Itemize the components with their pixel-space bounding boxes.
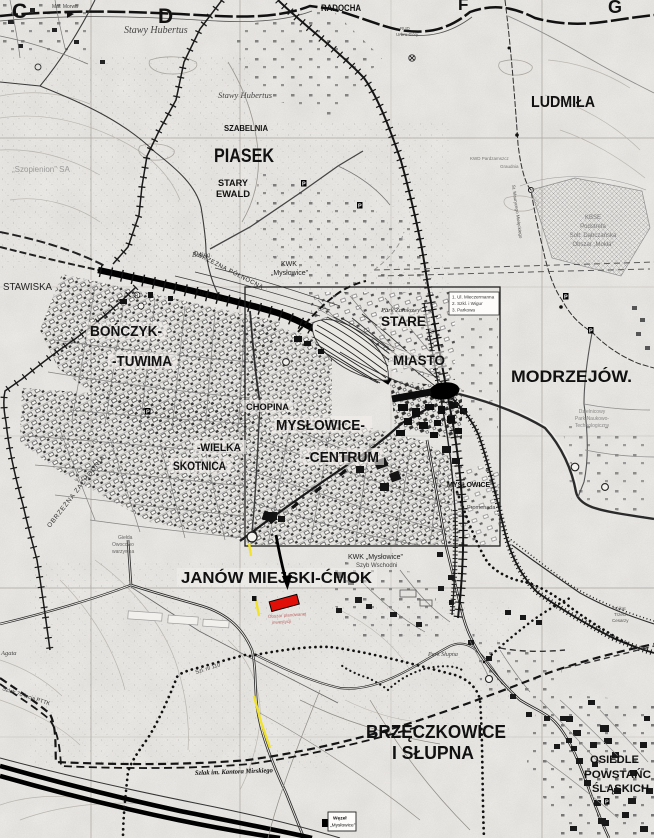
svg-text:P: P xyxy=(302,181,306,187)
svg-text:MODRZEJÓW.: MODRZEJÓW. xyxy=(511,367,632,386)
svg-text:Obszar „Mokła”: Obszar „Mokła” xyxy=(572,242,613,248)
svg-text:Park Naukowo-: Park Naukowo- xyxy=(575,416,610,422)
svg-text:Węzeł: Węzeł xyxy=(333,816,347,822)
svg-text:P: P xyxy=(358,203,362,209)
svg-text:P: P xyxy=(564,294,568,300)
svg-text:SKOTNICA: SKOTNICA xyxy=(173,461,226,473)
svg-text:STARE: STARE xyxy=(381,313,426,329)
svg-text:Trzech: Trzech xyxy=(614,612,628,617)
svg-text:Park Zamkowy: Park Zamkowy xyxy=(380,307,420,314)
svg-text:„Szopienion” SA: „Szopienion” SA xyxy=(12,165,70,174)
svg-text:OSIEDLE: OSIEDLE xyxy=(590,754,639,766)
svg-text:Mal. Morwa: Mal. Morwa xyxy=(52,4,78,10)
svg-text:Stawy Hubertus: Stawy Hubertus xyxy=(124,25,188,36)
svg-text:Agata: Agata xyxy=(0,650,17,657)
svg-text:PIASEK: PIASEK xyxy=(214,146,274,167)
svg-text:R: R xyxy=(135,294,139,300)
svg-text:2. Szkl. i Wigur: 2. Szkl. i Wigur xyxy=(452,301,483,306)
svg-text:P: P xyxy=(589,328,593,334)
svg-text:BRZĘCZKOWICE: BRZĘCZKOWICE xyxy=(366,722,506,742)
svg-text:MIASTO: MIASTO xyxy=(393,352,445,368)
svg-text:EWALD: EWALD xyxy=(216,189,251,199)
svg-text:KWK „Mysłowice”: KWK „Mysłowice” xyxy=(348,554,404,561)
svg-text:warzywna: warzywna xyxy=(112,549,134,555)
svg-text:JANÓW MIEJSKI-ĆMOK: JANÓW MIEJSKI-ĆMOK xyxy=(181,568,372,587)
svg-text:G: G xyxy=(608,0,622,17)
svg-text:BOŃCZYK-: BOŃCZYK- xyxy=(90,323,162,340)
svg-text:1. Ul. Mieczermanna: 1. Ul. Mieczermanna xyxy=(452,295,495,300)
svg-text:-TUWIMA: -TUWIMA xyxy=(112,354,172,370)
svg-text:KWD Pardzamszcz: KWD Pardzamszcz xyxy=(470,156,510,161)
svg-text:C: C xyxy=(12,0,27,23)
svg-text:KBSE: KBSE xyxy=(585,215,601,221)
svg-text:STAWISKA: STAWISKA xyxy=(3,282,52,293)
svg-text:Park Słupna: Park Słupna xyxy=(427,652,458,658)
svg-text:Trójkąt: Trójkąt xyxy=(612,606,626,611)
svg-text:CHOPINA: CHOPINA xyxy=(246,402,289,413)
svg-text:Sołt. Dąbczańska: Sołt. Dąbczańska xyxy=(570,233,617,239)
svg-text:RADOCHA: RADOCHA xyxy=(321,3,361,13)
svg-text:F: F xyxy=(458,0,468,14)
svg-text:Cesarzy: Cesarzy xyxy=(612,618,629,623)
svg-text:Technologiczny: Technologiczny xyxy=(575,423,610,429)
svg-text:Stawy Hubertus: Stawy Hubertus xyxy=(218,90,273,100)
svg-text:Urbru Góry: Urbru Góry xyxy=(396,32,419,37)
svg-text:STARY: STARY xyxy=(218,178,248,188)
svg-text:P: P xyxy=(146,409,150,415)
svg-text:-WIELKA: -WIELKA xyxy=(197,442,241,454)
svg-text:MYSŁOWICE-: MYSŁOWICE- xyxy=(276,417,365,434)
svg-text:Promenada: Promenada xyxy=(467,505,496,511)
svg-text:LUDMIŁA: LUDMIŁA xyxy=(531,94,595,111)
svg-text:MYSŁOWICE: MYSŁOWICE xyxy=(447,482,490,489)
svg-text:ŚLĄSKICH: ŚLĄSKICH xyxy=(592,782,649,795)
svg-text:3. Parkowa: 3. Parkowa xyxy=(452,308,475,313)
svg-text:RUD: RUD xyxy=(400,26,410,31)
svg-text:„Mysłowice”: „Mysłowice” xyxy=(330,823,356,829)
svg-text:Giełda: Giełda xyxy=(118,535,133,541)
svg-text:P: P xyxy=(605,799,609,805)
svg-text:I SŁUPNA: I SŁUPNA xyxy=(392,743,474,763)
svg-text:SZABELNIA: SZABELNIA xyxy=(224,123,268,133)
svg-text:Dzielnicowy: Dzielnicowy xyxy=(579,409,606,415)
svg-text:-CENTRUM: -CENTRUM xyxy=(305,449,379,466)
svg-text:KWK: KWK xyxy=(281,261,297,268)
svg-text:Graudnia: Graudnia xyxy=(500,164,519,169)
svg-text:„Mysłowice”: „Mysłowice” xyxy=(271,270,309,277)
svg-text:POWSTAŃC: POWSTAŃC xyxy=(584,768,651,781)
svg-text:Podstrefa: Podstrefa xyxy=(580,224,606,230)
svg-text:Owocowo: Owocowo xyxy=(112,542,134,548)
